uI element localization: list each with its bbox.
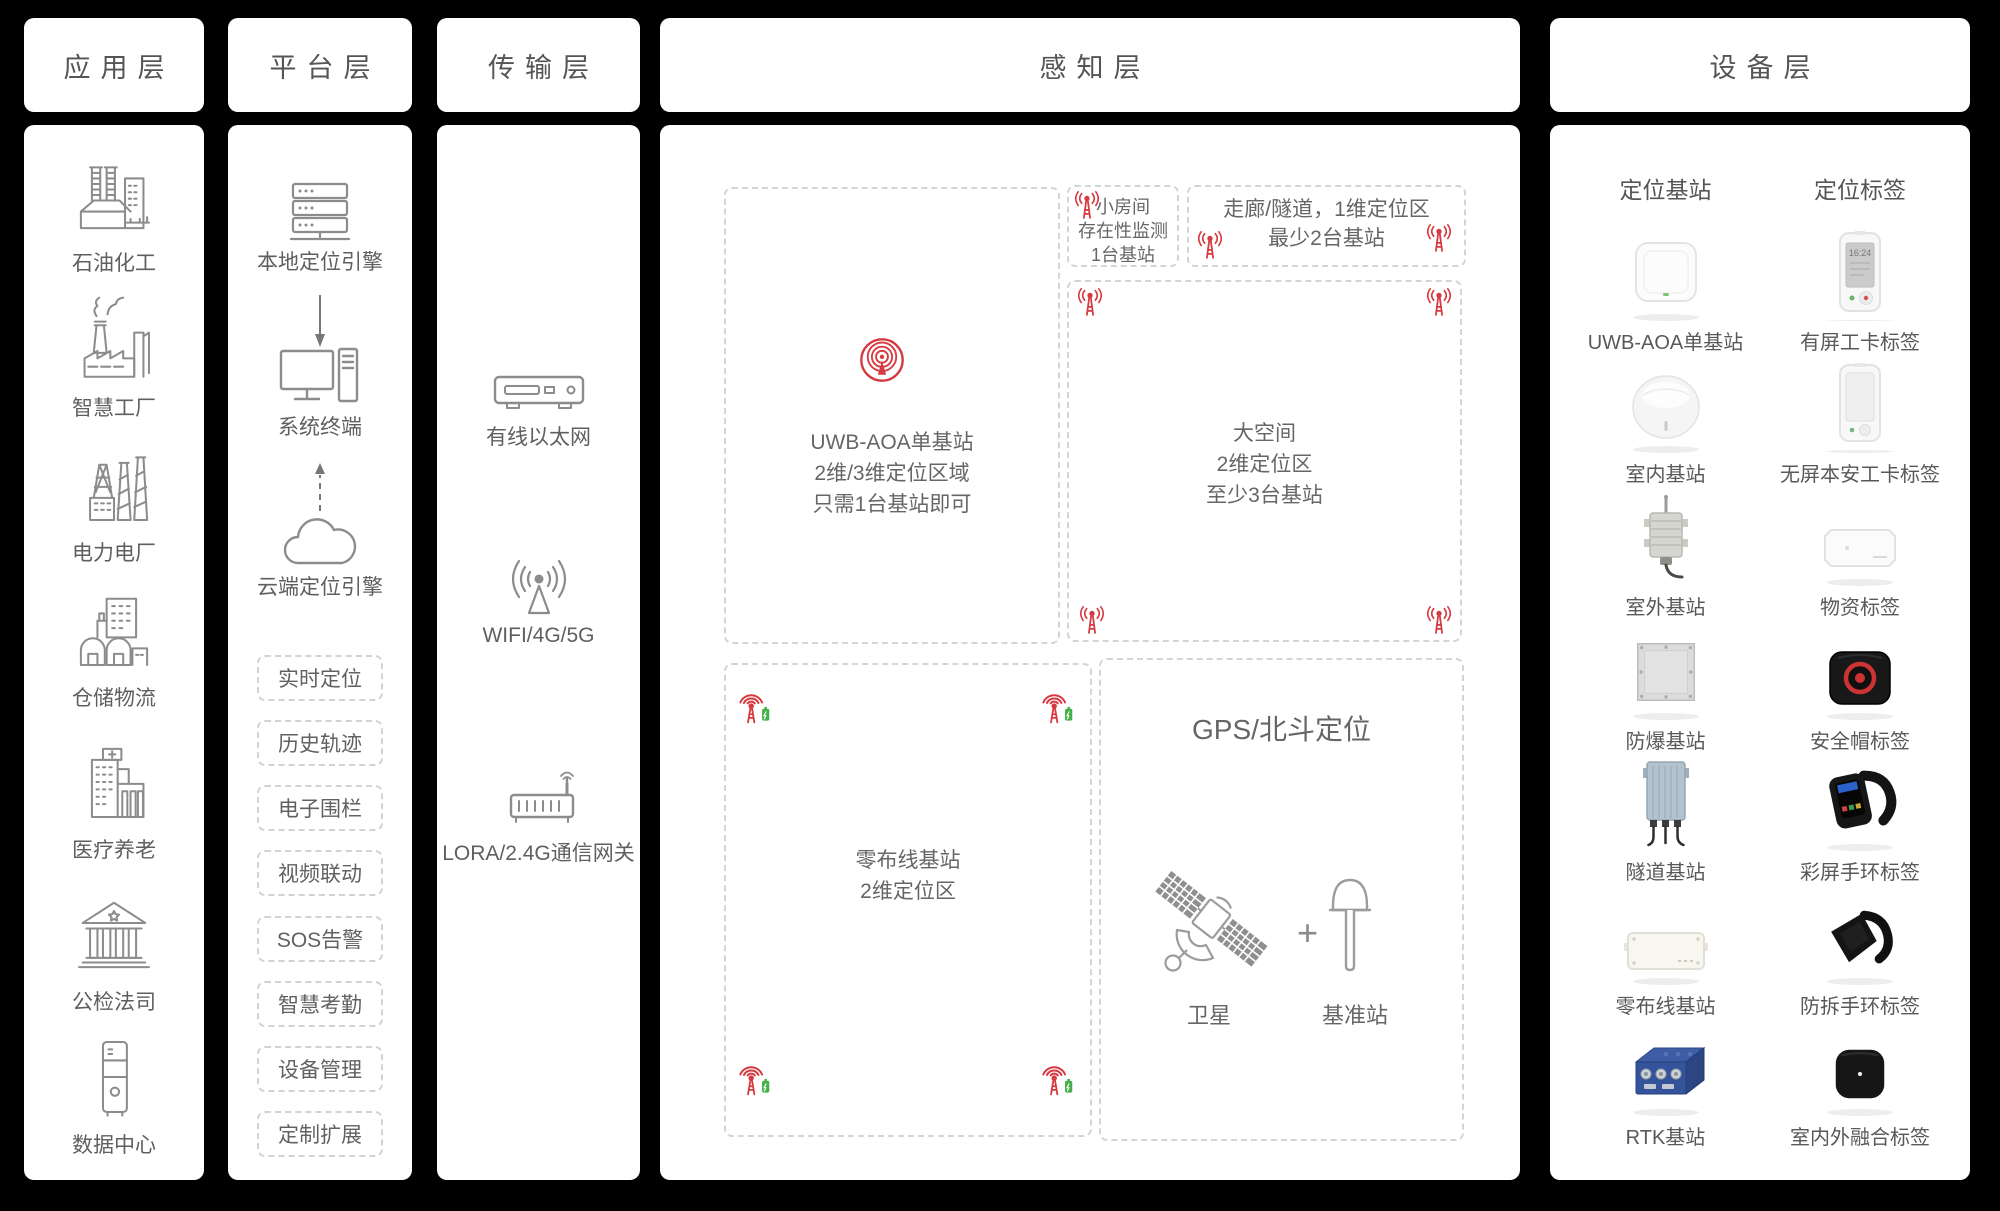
antenna-broadcast-icon — [491, 553, 587, 617]
zone-zero-wiring: 零布线基站 2维定位区 — [724, 663, 1092, 1137]
device-shadow — [1827, 844, 1893, 851]
battery-base-station-antenna-icon — [734, 1061, 772, 1097]
function-device-management[interactable]: 设备管理 — [257, 1046, 383, 1092]
device-label: 室内基站 — [1626, 458, 1706, 487]
helmet-tag-image — [1822, 646, 1898, 710]
app-item-label: 仓储物流 — [72, 682, 156, 712]
device-shadow — [1633, 713, 1699, 720]
device-label: 防拆手环标签 — [1800, 990, 1920, 1019]
app-item-label: 石油化工 — [72, 247, 156, 277]
platform-layer-panel: 本地定位引擎 系统终端 云端定位引擎 实时定位 历史轨迹 电子围栏 视频联动 S… — [228, 125, 412, 1180]
zone-small-room: 小房间 存在性监测 1台基站 — [1067, 185, 1179, 267]
base-station-antenna-icon — [1424, 224, 1454, 253]
zero-wiring-station-image — [1620, 925, 1712, 975]
function-smart-attendance[interactable]: 智慧考勤 — [257, 981, 383, 1027]
svg-text:16:24: 16:24 — [1849, 248, 1872, 258]
base-station-antenna-icon — [1424, 606, 1454, 635]
device-shadow — [1633, 978, 1699, 985]
base-station-antenna-icon — [1075, 288, 1105, 317]
screen-badge-tag-image: 16:24 — [1830, 229, 1890, 317]
smart-factory-icon — [68, 294, 160, 386]
asset-tag-image — [1817, 520, 1903, 576]
device-shadow — [1827, 713, 1893, 720]
application-layer-header: 应用层 — [24, 18, 204, 112]
noscreen-badge-tag-image — [1831, 361, 1889, 447]
indoor-station-image — [1627, 371, 1705, 443]
device-label: 零布线基站 — [1616, 990, 1716, 1019]
device-shadow — [1633, 446, 1699, 453]
zone-corridor: 走廊/隧道，1维定位区 最少2台基站 — [1187, 185, 1466, 267]
app-item-petrochemical: 石油化工 — [24, 149, 204, 277]
app-item-power-plant: 电力电厂 — [24, 439, 204, 567]
device-shadow — [1827, 978, 1893, 985]
local-engine-label: 本地定位引擎 — [228, 246, 412, 276]
tunnel-station-image — [1633, 756, 1699, 848]
device-label: 物资标签 — [1820, 591, 1900, 620]
arrow-down-icon — [311, 293, 329, 349]
wifi-4g-5g-label: WIFI/4G/5G — [437, 624, 640, 648]
gps-zone-title: GPS/北斗定位 — [1101, 714, 1462, 745]
dashed-arrow-up-icon — [311, 461, 329, 513]
cloud-icon — [279, 517, 361, 567]
rtk-station-image — [1620, 1036, 1712, 1106]
device-label: 有屏工卡标签 — [1800, 326, 1920, 355]
tags-column-header: 定位标签 — [1762, 171, 1958, 205]
device-label: 室内外融合标签 — [1790, 1121, 1930, 1150]
system-terminal-label: 系统终端 — [228, 411, 412, 441]
uwb-beacon-icon — [859, 337, 905, 383]
data-center-icon — [68, 1031, 160, 1123]
device-row: 防爆基站 安全帽标签 — [1550, 628, 1970, 754]
stations-column-header: 定位基站 — [1568, 171, 1763, 205]
device-row: 室外基站 物资标签 — [1550, 494, 1970, 620]
transmission-layer-panel: 有线以太网 WIFI/4G/5G LORA/2.4G通信网关 — [437, 125, 640, 1180]
app-item-label: 电力电厂 — [72, 537, 156, 567]
device-label: 防爆基站 — [1626, 725, 1706, 754]
ethernet-box-icon — [487, 369, 591, 415]
device-shadow — [1827, 1109, 1893, 1116]
function-history-track[interactable]: 历史轨迹 — [257, 720, 383, 766]
battery-base-station-antenna-icon — [734, 689, 772, 725]
zone-zero-wiring-text: 零布线基站 2维定位区 — [726, 845, 1090, 907]
app-item-smart-factory: 智慧工厂 — [24, 294, 204, 422]
function-realtime-location[interactable]: 实时定位 — [257, 655, 383, 701]
zone-big-space: 大空间 2维定位区 至少3台基站 — [1067, 280, 1462, 642]
device-layer-panel: 定位基站 定位标签 UWB-AOA单基站 — [1550, 125, 1970, 1180]
app-item-label: 智慧工厂 — [72, 392, 156, 422]
device-row: 隧道基站 — [1550, 759, 1970, 885]
device-row: 室内基站 无屏本安工卡标签 — [1550, 361, 1970, 487]
reference-station-icon — [1321, 872, 1379, 976]
perception-layer-panel: 小房间 存在性监测 1台基站 走廊/隧道，1维定位区 最少2台基站 — [660, 125, 1520, 1180]
color-wristband-tag-image — [1817, 763, 1903, 841]
server-icon — [285, 181, 355, 243]
device-row: 零布线基站 防拆手环标签 — [1550, 893, 1970, 1019]
uwb-aoa-anchor-image — [1624, 235, 1708, 311]
base-station-antenna-icon — [1077, 606, 1107, 635]
perception-layer-header: 感知层 — [660, 18, 1520, 112]
reference-station-label: 基准站 — [1295, 1000, 1415, 1031]
base-station-antenna-icon — [1424, 288, 1454, 317]
device-shadow — [1827, 579, 1893, 586]
power-plant-icon — [68, 439, 160, 531]
lora-gateway-label: LORA/2.4G通信网关 — [437, 837, 640, 867]
function-sos-alarm[interactable]: SOS告警 — [257, 916, 383, 962]
app-item-warehouse: 仓储物流 — [24, 584, 204, 712]
device-shadow — [1827, 450, 1893, 453]
device-label: 无屏本安工卡标签 — [1780, 458, 1940, 487]
courthouse-icon — [68, 888, 160, 980]
device-shadow — [1633, 1109, 1699, 1116]
gateway-icon — [489, 767, 589, 831]
zone-gps-beidou: GPS/北斗定位 + — [1099, 658, 1464, 1141]
plus-sign: + — [1297, 912, 1318, 954]
battery-base-station-antenna-icon — [1037, 1061, 1075, 1097]
architecture-diagram: 应用层 平台层 传输层 感知层 设备层 石油化工 智慧工厂 — [0, 0, 2000, 1211]
explosion-proof-station-image — [1628, 634, 1704, 710]
zone-big-space-text: 大空间 2维定位区 至少3台基站 — [1069, 418, 1460, 511]
app-item-data-center: 数据中心 — [24, 1031, 204, 1159]
function-custom-extension[interactable]: 定制扩展 — [257, 1111, 383, 1157]
device-label: 安全帽标签 — [1810, 725, 1910, 754]
hospital-icon — [68, 736, 160, 828]
terminal-icon — [277, 347, 363, 409]
zone-uwb-aoa: UWB-AOA单基站 2维/3维定位区域 只需1台基站即可 — [724, 187, 1060, 644]
cloud-engine-label: 云端定位引擎 — [228, 571, 412, 601]
device-shadow — [1633, 314, 1699, 321]
device-row: RTK基站 室内外融合标签 — [1550, 1024, 1970, 1150]
device-label: 彩屏手环标签 — [1800, 856, 1920, 885]
battery-base-station-antenna-icon — [1037, 689, 1075, 725]
application-layer-panel: 石油化工 智慧工厂 电力电厂 — [24, 125, 204, 1180]
device-label: 室外基站 — [1626, 591, 1706, 620]
function-video-linkage[interactable]: 视频联动 — [257, 850, 383, 896]
device-label: UWB-AOA单基站 — [1588, 326, 1744, 355]
device-label: RTK基站 — [1626, 1121, 1706, 1150]
indoor-outdoor-fusion-tag-image — [1827, 1042, 1893, 1106]
ethernet-label: 有线以太网 — [437, 421, 640, 451]
tamper-proof-wristband-tag-image — [1820, 905, 1900, 975]
base-station-antenna-icon — [1195, 231, 1225, 260]
app-item-justice: 公检法司 — [24, 888, 204, 1016]
app-item-label: 数据中心 — [72, 1129, 156, 1159]
device-row: UWB-AOA单基站 16:24 有屏工卡标签 — [1550, 229, 1970, 355]
device-shadow — [1827, 320, 1893, 321]
transmission-layer-header: 传输层 — [437, 18, 640, 112]
device-layer-header: 设备层 — [1550, 18, 1970, 112]
warehouse-logistics-icon — [68, 584, 160, 676]
refinery-icon — [68, 149, 160, 241]
app-item-label: 公检法司 — [72, 986, 156, 1016]
function-geofence[interactable]: 电子围栏 — [257, 785, 383, 831]
zone-corridor-text: 走廊/隧道，1维定位区 最少2台基站 — [1189, 195, 1464, 253]
zone-small-room-text: 小房间 存在性监测 1台基站 — [1069, 195, 1177, 267]
platform-layer-header: 平台层 — [228, 18, 412, 112]
app-item-label: 医疗养老 — [72, 834, 156, 864]
app-item-healthcare: 医疗养老 — [24, 736, 204, 864]
satellite-icon — [1149, 868, 1275, 980]
zone-uwb-text: UWB-AOA单基站 2维/3维定位区域 只需1台基站即可 — [726, 427, 1058, 520]
outdoor-station-image — [1626, 493, 1706, 583]
device-label: 隧道基站 — [1626, 856, 1706, 885]
satellite-label: 卫星 — [1149, 1000, 1269, 1031]
